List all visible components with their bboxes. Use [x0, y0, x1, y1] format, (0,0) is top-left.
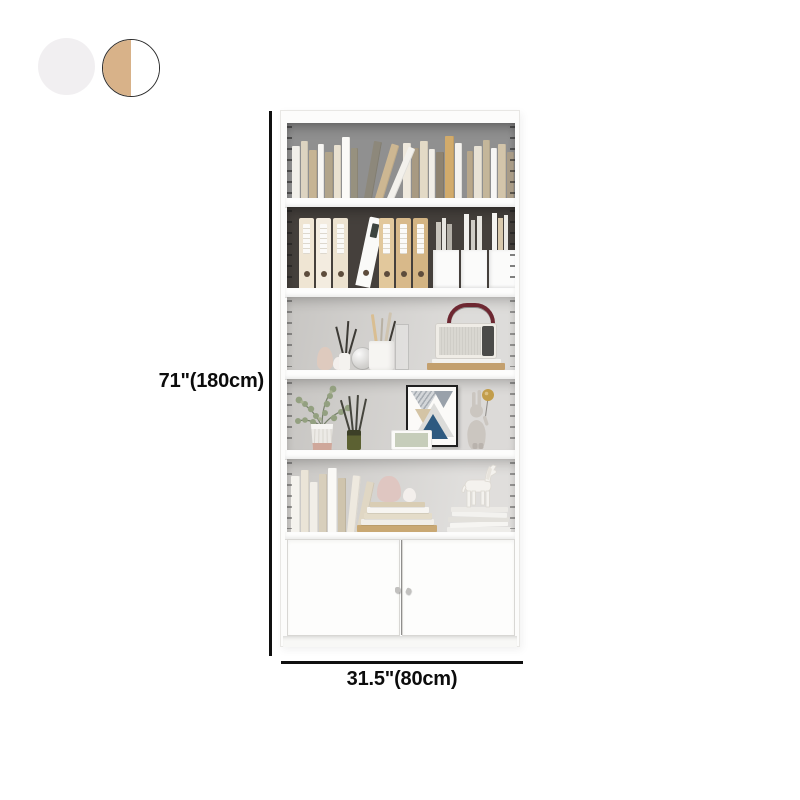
shelf-board — [285, 370, 515, 379]
door-knob-left[interactable] — [395, 587, 400, 593]
book-spine — [429, 149, 435, 198]
book-spine — [436, 152, 444, 198]
acrylic-stand — [395, 324, 409, 370]
book-spine — [412, 148, 419, 198]
cabinet-door-right[interactable] — [402, 539, 515, 636]
stacked-book — [364, 513, 432, 519]
shelf-pin-strip — [287, 382, 292, 447]
diffuser-bottle — [347, 430, 361, 450]
book-spine — [491, 148, 497, 198]
book-spine — [309, 150, 317, 198]
color-swatch-white[interactable] — [38, 38, 95, 95]
product-viewer: { "product": { "type": "bookcase-with-ca… — [0, 0, 800, 800]
plinth-base — [283, 636, 517, 647]
book-spine — [351, 148, 358, 198]
shelf-pin-strip — [287, 126, 292, 195]
shelf-pin-strip — [287, 210, 292, 285]
radio-handle — [447, 303, 495, 324]
binder — [413, 218, 428, 288]
cabinet-door-left[interactable] — [287, 539, 400, 636]
swatch-white-half — [131, 40, 159, 96]
horse-figurine — [459, 463, 499, 508]
vintage-radio — [435, 323, 497, 359]
shelf-board — [285, 450, 515, 459]
book-spine — [338, 478, 346, 532]
shelf-pin-strip — [510, 462, 515, 529]
book-spine — [498, 144, 506, 198]
book-under-radio — [432, 359, 501, 363]
height-dimension-label: 71"(180cm) — [0, 369, 264, 393]
shelf-board — [285, 288, 515, 297]
width-dimension-label: 31.5"(80cm) — [281, 667, 523, 691]
shelf-pin-strip — [510, 126, 515, 195]
shelf-pin-strip — [287, 462, 292, 529]
diffuser-reed — [358, 399, 367, 433]
book-spine — [301, 470, 309, 532]
width-dimension-line — [281, 661, 523, 664]
file-box — [461, 250, 487, 288]
shelf-4-decor — [287, 379, 515, 450]
binder — [316, 218, 331, 288]
shelf-board — [285, 198, 515, 207]
book-spine — [483, 140, 490, 198]
radio-side-panel — [482, 326, 494, 356]
door-divider — [401, 540, 403, 635]
book-spine — [291, 476, 300, 532]
shelf-2-binders — [287, 207, 515, 288]
shelf-pin-strip — [510, 300, 515, 367]
book-spine — [318, 144, 324, 198]
pencil-cup — [369, 341, 394, 370]
egg-ornament — [403, 488, 416, 502]
pencil — [371, 314, 378, 344]
book-spine — [342, 137, 350, 198]
stacked-book — [357, 525, 437, 532]
book-spine — [467, 151, 473, 198]
clock-screen — [395, 433, 428, 447]
digital-clock — [391, 430, 432, 450]
file-box — [433, 250, 459, 288]
book-spine — [328, 468, 337, 532]
book-spine — [420, 141, 428, 198]
book-spine — [319, 474, 327, 532]
book-spine — [445, 136, 454, 198]
binder — [396, 218, 411, 288]
book-row — [292, 123, 510, 198]
mushroom-ornament — [377, 476, 401, 502]
shelf-3-decor — [287, 297, 515, 370]
book-spine — [325, 152, 333, 198]
shelf-pin-strip — [287, 300, 292, 367]
shelf-pin-strip — [510, 210, 515, 285]
stacked-book — [367, 507, 429, 513]
binder — [299, 218, 314, 288]
book-row — [291, 459, 363, 532]
book-spine — [334, 145, 341, 198]
stacked-book — [361, 519, 434, 525]
shelf-1-books — [287, 123, 515, 198]
book-spine — [455, 143, 462, 198]
binder — [333, 218, 348, 288]
bunny-figurine — [464, 386, 494, 450]
book-spine — [292, 146, 300, 198]
book-spine — [310, 482, 318, 532]
height-dimension-line — [269, 111, 272, 656]
art-triangle-gray — [434, 391, 453, 408]
radio-speaker-mesh — [439, 327, 481, 355]
pink-vase — [317, 347, 333, 370]
cabinet-top-board — [285, 532, 515, 539]
book-spine — [301, 141, 308, 198]
binder — [379, 218, 394, 288]
twig-vase — [339, 353, 350, 370]
shelf-5-decor — [287, 459, 515, 532]
shelf-pin-strip — [510, 382, 515, 447]
book-under-radio — [427, 363, 505, 370]
stacked-book — [370, 502, 425, 507]
twigs — [335, 327, 343, 355]
diffuser-reed — [355, 395, 358, 432]
bookcase — [280, 110, 520, 647]
book-spine — [474, 146, 482, 198]
color-swatch-white-wood[interactable] — [102, 39, 160, 97]
swatch-wood-half — [103, 40, 131, 96]
